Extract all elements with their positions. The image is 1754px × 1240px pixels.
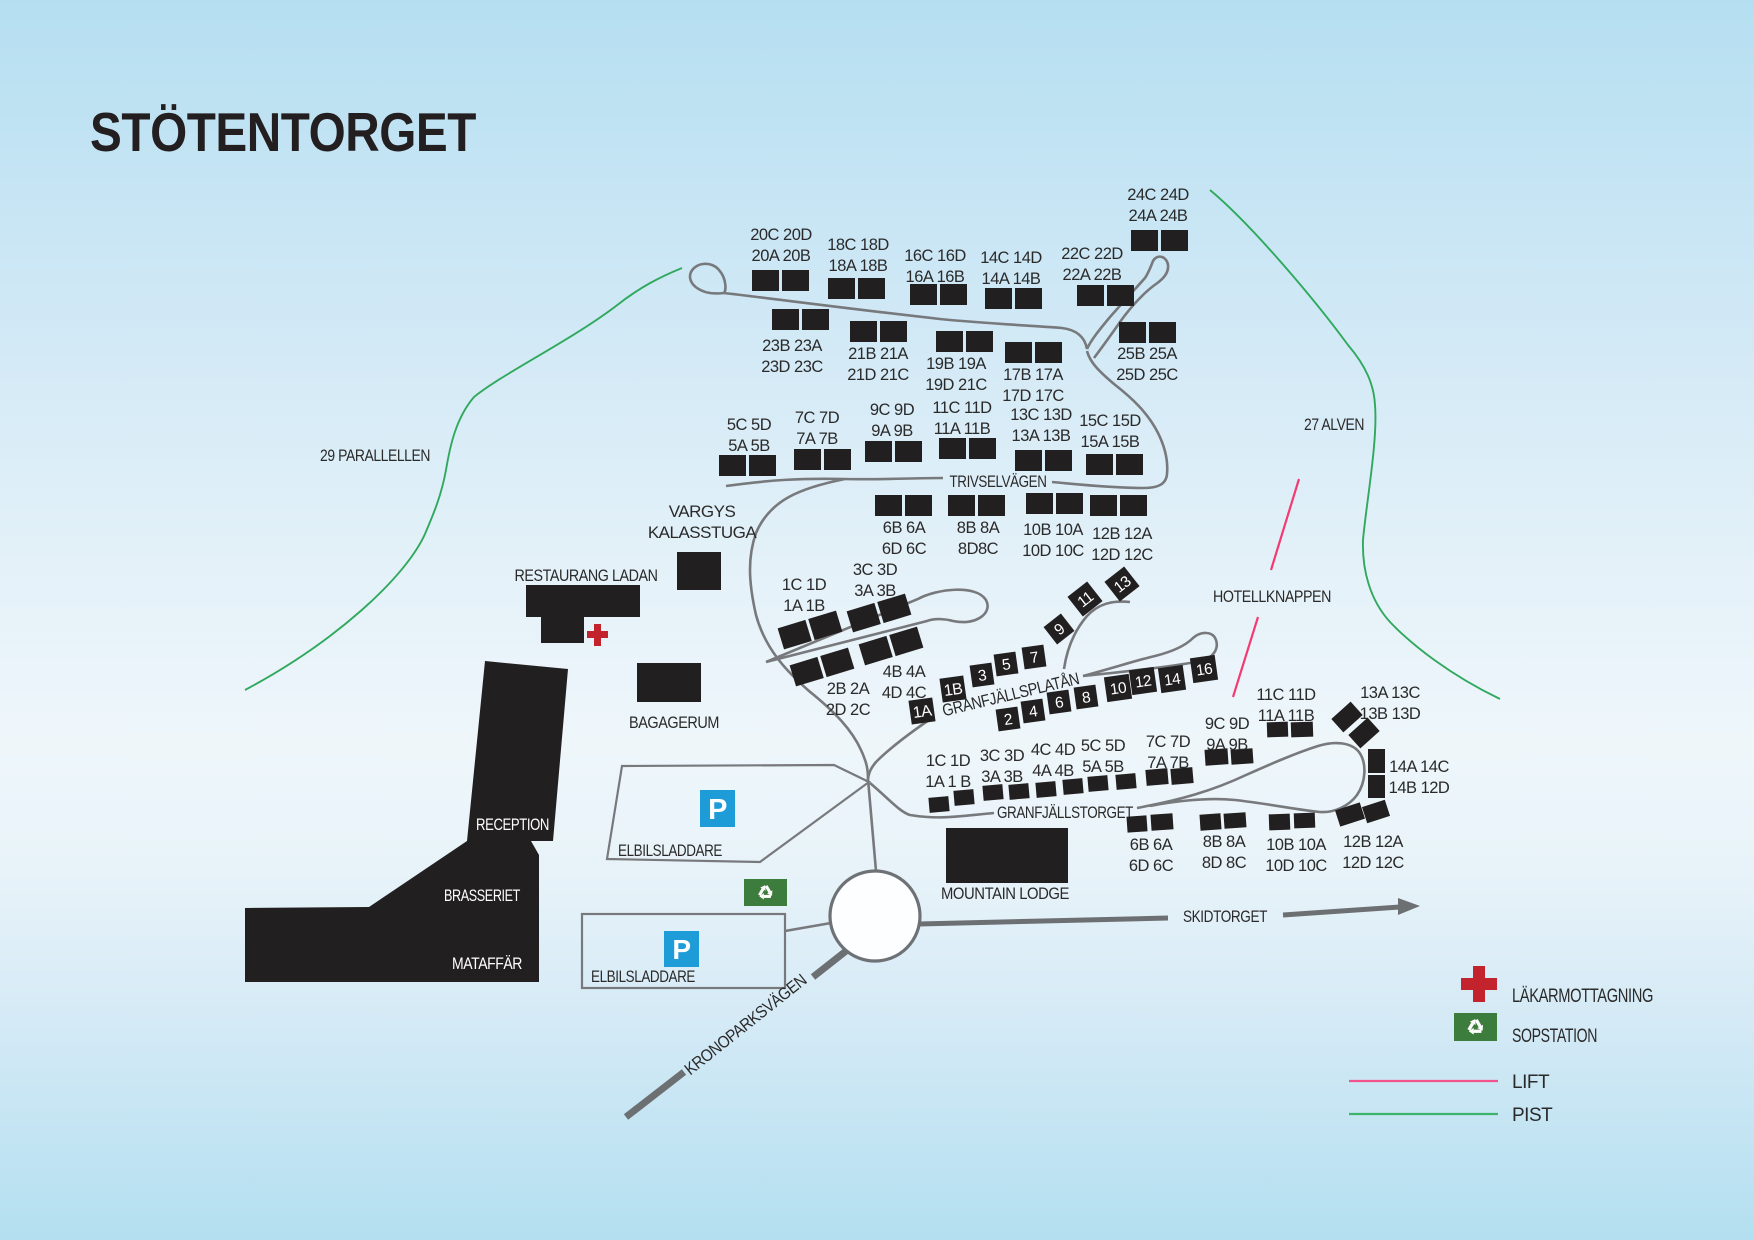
- svg-text:6D 6C: 6D 6C: [882, 540, 927, 558]
- svg-text:2B 2A: 2B 2A: [827, 680, 870, 698]
- svg-text:SKIDTORGET: SKIDTORGET: [1183, 907, 1267, 926]
- svg-text:12D 12C: 12D 12C: [1091, 546, 1153, 564]
- svg-text:10B 10A: 10B 10A: [1023, 521, 1083, 539]
- svg-text:10: 10: [1109, 679, 1128, 698]
- svg-text:8B 8A: 8B 8A: [957, 519, 1000, 537]
- svg-text:HOTELLKNAPPEN: HOTELLKNAPPEN: [1213, 587, 1331, 606]
- svg-text:2D 2C: 2D 2C: [826, 701, 871, 719]
- svg-text:17B 17A: 17B 17A: [1003, 366, 1063, 384]
- svg-text:1C 1D: 1C 1D: [926, 752, 971, 770]
- svg-text:13A 13B: 13A 13B: [1012, 427, 1071, 445]
- svg-text:16: 16: [1195, 661, 1213, 680]
- svg-text:TRIVSELVÄGEN: TRIVSELVÄGEN: [950, 472, 1047, 491]
- svg-text:14B 12D: 14B 12D: [1389, 779, 1450, 797]
- svg-text:15A 15B: 15A 15B: [1081, 433, 1140, 451]
- svg-text:11C 11D: 11C 11D: [1256, 686, 1316, 704]
- svg-text:SOPSTATION: SOPSTATION: [1512, 1026, 1597, 1047]
- svg-text:9A 9B: 9A 9B: [871, 422, 913, 440]
- svg-text:5C 5D: 5C 5D: [1081, 737, 1126, 755]
- svg-text:11C 11D: 11C 11D: [932, 399, 992, 417]
- svg-text:4B 4A: 4B 4A: [883, 663, 926, 681]
- svg-text:18A 18B: 18A 18B: [829, 257, 888, 275]
- svg-text:3A 3B: 3A 3B: [981, 768, 1023, 786]
- svg-text:7C 7D: 7C 7D: [795, 409, 840, 427]
- svg-text:11A 11B: 11A 11B: [934, 420, 991, 438]
- svg-text:7A 7B: 7A 7B: [1147, 754, 1189, 772]
- svg-text:GRANFJÄLLSTORGET: GRANFJÄLLSTORGET: [997, 803, 1133, 822]
- svg-text:10D 10C: 10D 10C: [1022, 542, 1084, 560]
- svg-text:24C 24D: 24C 24D: [1127, 186, 1189, 204]
- svg-text:8D8C: 8D8C: [958, 540, 999, 558]
- svg-text:20C 20D: 20C 20D: [750, 226, 812, 244]
- svg-text:13A 13C: 13A 13C: [1360, 684, 1420, 702]
- svg-text:16A 16B: 16A 16B: [906, 268, 965, 286]
- svg-text:RECEPTION: RECEPTION: [476, 816, 549, 834]
- svg-text:14A 14C: 14A 14C: [1389, 758, 1449, 776]
- svg-text:8D 8C: 8D 8C: [1202, 854, 1247, 872]
- svg-text:1B: 1B: [943, 681, 964, 700]
- svg-text:22A 22B: 22A 22B: [1063, 266, 1122, 284]
- svg-text:5A 5B: 5A 5B: [1082, 758, 1124, 776]
- svg-text:25B 25A: 25B 25A: [1117, 345, 1177, 363]
- svg-text:16C 16D: 16C 16D: [904, 247, 966, 265]
- svg-text:23D 23C: 23D 23C: [761, 358, 823, 376]
- svg-text:24A 24B: 24A 24B: [1129, 207, 1188, 225]
- svg-text:25D 25C: 25D 25C: [1116, 366, 1178, 384]
- svg-text:VARGYS: VARGYS: [669, 502, 736, 521]
- svg-text:20A 20B: 20A 20B: [752, 247, 811, 265]
- svg-text:6B 6A: 6B 6A: [883, 519, 926, 537]
- svg-text:9C 9D: 9C 9D: [1205, 715, 1250, 733]
- svg-text:7A 7B: 7A 7B: [796, 430, 838, 448]
- svg-text:7C 7D: 7C 7D: [1146, 733, 1191, 751]
- svg-text:3C 3D: 3C 3D: [980, 747, 1025, 765]
- svg-text:14: 14: [1163, 670, 1182, 689]
- svg-text:P: P: [672, 934, 690, 965]
- svg-text:4C 4D: 4C 4D: [1031, 741, 1076, 759]
- svg-text:MOUNTAIN LODGE: MOUNTAIN LODGE: [941, 884, 1069, 903]
- svg-text:1A 1B: 1A 1B: [783, 597, 825, 615]
- svg-text:9A 9B: 9A 9B: [1206, 736, 1248, 754]
- svg-text:LÄKARMOTTAGNING: LÄKARMOTTAGNING: [1512, 986, 1653, 1007]
- svg-text:KALASSTUGA: KALASSTUGA: [648, 523, 758, 542]
- svg-text:1A 1 B: 1A 1 B: [925, 773, 971, 791]
- svg-text:LIFT: LIFT: [1512, 1072, 1550, 1093]
- svg-text:13C 13D: 13C 13D: [1010, 406, 1072, 424]
- svg-text:12B 12A: 12B 12A: [1092, 525, 1152, 543]
- svg-text:23B 23A: 23B 23A: [762, 337, 822, 355]
- svg-text:3C 3D: 3C 3D: [853, 561, 898, 579]
- svg-text:12D 12C: 12D 12C: [1342, 854, 1404, 872]
- svg-text:3A 3B: 3A 3B: [854, 582, 896, 600]
- svg-text:13B 13D: 13B 13D: [1360, 705, 1421, 723]
- svg-text:17D 17C: 17D 17C: [1002, 387, 1064, 405]
- svg-text:1A: 1A: [912, 702, 934, 722]
- svg-text:8B 8A: 8B 8A: [1203, 833, 1246, 851]
- svg-text:5A 5B: 5A 5B: [728, 437, 770, 455]
- svg-text:BRASSERIET: BRASSERIET: [444, 887, 520, 905]
- svg-text:19B 19A: 19B 19A: [926, 355, 986, 373]
- svg-text:9C 9D: 9C 9D: [870, 401, 915, 419]
- svg-text:11A 11B: 11A 11B: [1258, 707, 1315, 725]
- svg-text:ELBILSLADDARE: ELBILSLADDARE: [618, 841, 722, 860]
- svg-text:4A 4B: 4A 4B: [1032, 762, 1074, 780]
- svg-text:6D 6C: 6D 6C: [1129, 857, 1174, 875]
- svg-text:12B 12A: 12B 12A: [1343, 833, 1403, 851]
- svg-text:1C 1D: 1C 1D: [782, 576, 827, 594]
- svg-text:5C 5D: 5C 5D: [727, 416, 772, 434]
- svg-text:10D 10C: 10D 10C: [1265, 857, 1327, 875]
- svg-text:22C 22D: 22C 22D: [1061, 245, 1123, 263]
- svg-text:18C 18D: 18C 18D: [827, 236, 889, 254]
- svg-text:14A 14B: 14A 14B: [982, 270, 1041, 288]
- svg-text:BAGAGERUM: BAGAGERUM: [629, 713, 719, 732]
- svg-text:19D 21C: 19D 21C: [925, 376, 987, 394]
- svg-text:RESTAURANG LADAN: RESTAURANG LADAN: [515, 566, 658, 585]
- svg-text:MATAFFÄR: MATAFFÄR: [452, 955, 522, 973]
- svg-text:21D 21C: 21D 21C: [847, 366, 909, 384]
- svg-text:6B 6A: 6B 6A: [1130, 836, 1173, 854]
- svg-text:29 PARALLELLEN: 29 PARALLELLEN: [320, 446, 430, 465]
- svg-text:STÖTENTORGET: STÖTENTORGET: [90, 101, 476, 163]
- svg-text:ELBILSLADDARE: ELBILSLADDARE: [591, 967, 695, 986]
- svg-text:P: P: [708, 794, 727, 826]
- svg-text:27 ALVEN: 27 ALVEN: [1304, 415, 1364, 434]
- svg-text:21B 21A: 21B 21A: [848, 345, 908, 363]
- svg-text:10B 10A: 10B 10A: [1266, 836, 1326, 854]
- svg-text:14C 14D: 14C 14D: [980, 249, 1042, 267]
- svg-text:15C 15D: 15C 15D: [1079, 412, 1141, 430]
- svg-text:PIST: PIST: [1512, 1105, 1553, 1126]
- svg-text:12: 12: [1134, 673, 1152, 692]
